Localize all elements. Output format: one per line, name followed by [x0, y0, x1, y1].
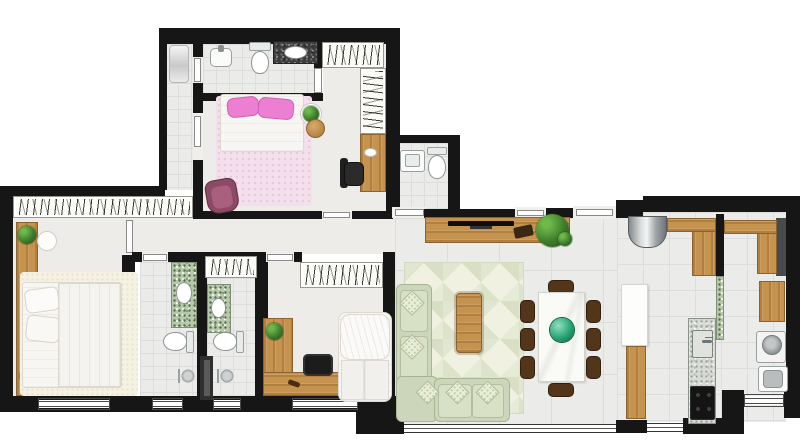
bathA-shower-fixture: [178, 369, 196, 383]
suite-counter-sink: [284, 46, 307, 59]
washing-machine-door: [762, 335, 782, 355]
suite-toilet-tank: [249, 42, 271, 51]
suite-toilet-bowl: [251, 51, 269, 74]
coffee-table: [456, 293, 482, 353]
bathB-toilet-bowl: [213, 332, 237, 351]
bottom-right-corner: [784, 390, 800, 418]
living-top-window-leaf: [517, 210, 544, 216]
tv-stand: [470, 226, 492, 229]
shaft-inner: [204, 360, 210, 396]
powder-toilet-tank: [427, 147, 447, 155]
bed2-wardrobe: [300, 262, 383, 288]
entrance-door: [576, 209, 613, 216]
dining-chair-left-2: [520, 328, 535, 351]
kitchen-counter-l2-lower: [759, 281, 785, 322]
bed2-duvet-roll: [340, 314, 390, 360]
master-door: [126, 220, 133, 253]
bed2-desk-horizontal: [263, 372, 345, 396]
kitchen-faucet: [702, 340, 712, 343]
bathA-sink: [176, 282, 192, 304]
master-pillow-1: [23, 286, 60, 314]
suite-wardrobe-side: [360, 68, 386, 134]
bed2-door: [267, 254, 293, 261]
left-wall: [0, 186, 13, 412]
master-window: [38, 398, 110, 410]
bed2-plant: [266, 323, 283, 340]
bathB-shower-fixture: [217, 369, 235, 383]
kitchen-counter-l2-top: [724, 220, 777, 234]
bathB-sink: [211, 298, 226, 318]
suite-inner-door-2: [194, 116, 201, 147]
dining-chair-left-3: [520, 356, 535, 379]
island-counter: [621, 284, 648, 346]
hall-floor: [122, 218, 395, 254]
master-plant-top: [18, 226, 36, 244]
bed2-black-machine: [303, 354, 333, 376]
kitchen-counter-l2-side: [757, 233, 777, 274]
green-glass-bowl: [550, 318, 574, 342]
suite-inner-door-1: [194, 58, 201, 82]
cooktop: [690, 386, 715, 420]
bathA-toilet-tank: [186, 331, 194, 353]
island-wood-base: [626, 346, 646, 419]
bathA-window: [152, 398, 183, 410]
powder-door: [395, 209, 424, 216]
glass-mullion: [616, 420, 647, 433]
kitchen-top-wall: [643, 196, 800, 212]
kitchen-counter-l1-side: [692, 231, 716, 276]
master-disc-table: [37, 231, 57, 251]
suite-door: [323, 212, 350, 218]
bathA-toilet-bowl: [163, 332, 187, 351]
kitchen-divider-strip: [716, 276, 724, 340]
kitchen-counter-l1-top: [667, 218, 716, 232]
suite-desk-item: [364, 148, 377, 157]
dining-chair-bottom: [548, 383, 574, 397]
suite-pink-pillow-1: [226, 95, 260, 118]
powder-toilet-bowl: [428, 155, 446, 179]
master-duvet: [58, 283, 121, 387]
kitchen-sink: [692, 330, 713, 358]
kitchen-glass-band: [647, 423, 688, 432]
steel-cylinder-cabinet: [628, 216, 667, 248]
purple-armchair-seat: [210, 184, 234, 209]
suite-wardrobe-top: [322, 42, 384, 68]
suite-desk: [360, 134, 386, 192]
kitchen-divider-wall: [716, 214, 724, 276]
dining-chair-left-1: [520, 300, 535, 323]
master-pillow-2: [25, 314, 62, 343]
laundry-window: [744, 394, 784, 407]
dining-chair-right-3: [586, 356, 601, 379]
dining-chair-right-1: [586, 300, 601, 323]
master-wardrobe: [13, 196, 193, 218]
console-plant-sprig: [558, 232, 572, 246]
powder-right-wall: [448, 135, 460, 211]
bathB-toilet-tank: [236, 331, 244, 353]
floor-plan: [0, 0, 800, 441]
laundry-tank-basin: [763, 370, 783, 388]
laundry-pillar: [722, 390, 744, 434]
pedestal-sink-faucet: [218, 45, 224, 52]
office-chair-seat: [344, 162, 364, 186]
right-wall: [786, 212, 800, 418]
suite-bath-door: [314, 68, 322, 93]
dining-chair-right-2: [586, 328, 601, 351]
powder-sink-basin: [405, 154, 420, 167]
bathA-door: [143, 254, 167, 261]
suite-left-wall: [159, 28, 167, 190]
living-glass-band: [404, 424, 616, 433]
suite-pink-pillow-2: [257, 96, 295, 120]
suite-wood-stool: [306, 119, 325, 138]
suite-right-wall: [386, 28, 400, 218]
bed2-sheet: [341, 360, 389, 400]
corridor-shower: [169, 45, 189, 83]
bathB-window: [213, 398, 241, 410]
right-wall-inset: [776, 218, 786, 276]
lowerleft-top-wall: [0, 186, 165, 196]
hall-closet: [205, 256, 257, 278]
